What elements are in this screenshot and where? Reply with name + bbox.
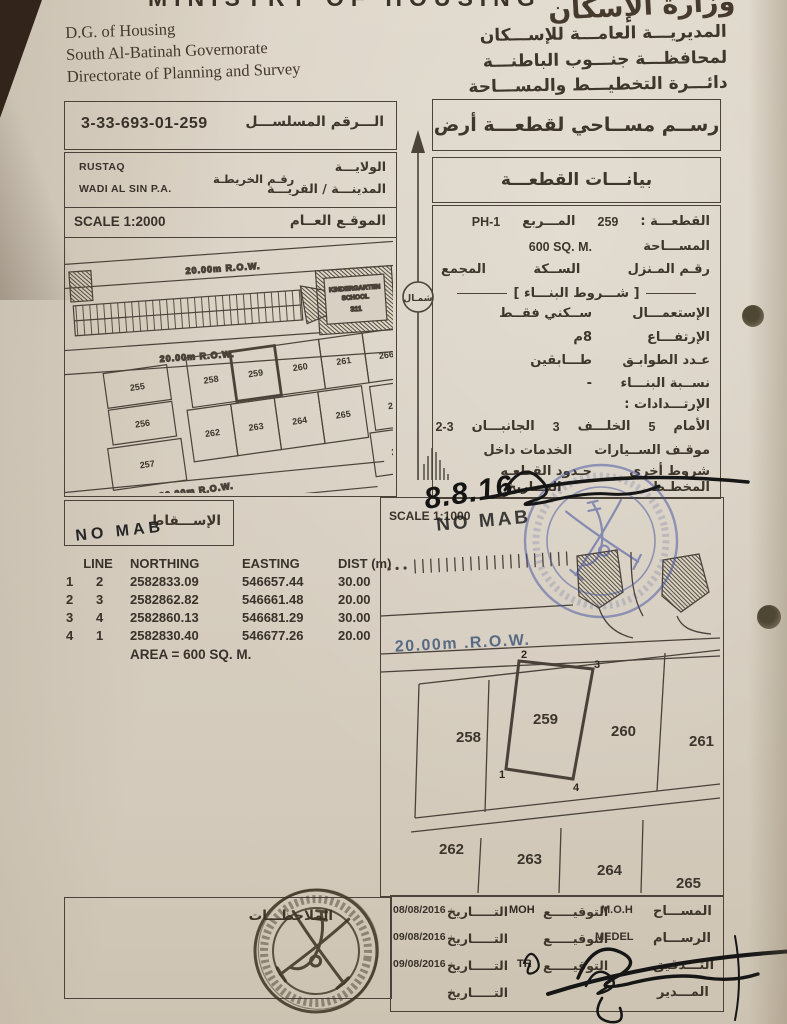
signature-row-checking: التـــدقيق التوقيـــــع TR التـــــاريخ … xyxy=(391,958,723,982)
paper-edge-shadow xyxy=(748,0,787,1024)
notes-box: الملاحظـــات xyxy=(64,897,392,999)
detail-map: SCALE 1:1000 20.00m .R.O.W. xyxy=(380,497,724,897)
admin-area-box: RUSTAQ WADI AL SIN P.A. رقـم الخريطـة ال… xyxy=(64,152,397,208)
plot-data-header-box: بيانـــات القطعـــة xyxy=(432,157,721,203)
coord-cell: 2 xyxy=(66,592,96,607)
detail-road-label: 20.00m .R.O.W. xyxy=(394,632,530,656)
row-plot-number: القطعـــة : 259 المـــربع PH-1 xyxy=(441,214,710,229)
svg-text:265: 265 xyxy=(676,875,701,892)
row-floors: عـدد الطوابـق طـــابقين xyxy=(441,353,710,368)
projection-label: الإســـقاط xyxy=(150,513,221,529)
svg-text:262: 262 xyxy=(204,427,220,439)
svg-text:3: 3 xyxy=(594,659,600,671)
svg-text:255: 255 xyxy=(129,381,145,393)
general-map-title: الموقـع العــام xyxy=(290,213,386,229)
col-easting: EASTING xyxy=(242,556,338,571)
paper-corner-shadow xyxy=(0,0,90,300)
header-ar-line3: دائـــرة التخطيـــط والمســـاحة xyxy=(468,71,728,101)
town-value: WADI AL SIN P.A. xyxy=(79,183,172,195)
svg-text:265: 265 xyxy=(335,409,351,421)
svg-text:268: 268 xyxy=(391,445,393,457)
detail-map-drawing: SCALE 1:1000 20.00m .R.O.W. xyxy=(381,498,720,893)
svg-text:256: 256 xyxy=(134,418,150,430)
signature-row-director: المـــدير التـــــاريخ xyxy=(391,985,723,1009)
svg-text:264: 264 xyxy=(597,862,623,879)
svg-text:266: 266 xyxy=(378,349,393,361)
coord-cell: 1 xyxy=(66,574,96,589)
row-setback-values: الأمام 5 الخلـــف 3 الجانبـــان 2-3 xyxy=(441,419,710,434)
row-height: الإرتفـــاع 8م xyxy=(441,330,710,345)
svg-text:260: 260 xyxy=(611,723,636,740)
row-use: الإستعمـــال ســكني فقــط xyxy=(441,306,710,321)
coordinates-table: LINE NORTHING EASTING DIST (m) 122582833… xyxy=(66,556,396,662)
svg-text:259: 259 xyxy=(247,367,263,379)
projection-box: الإســـقاط xyxy=(64,500,234,546)
svg-text:2: 2 xyxy=(521,649,527,661)
plot-data-box: القطعـــة : 259 المـــربع PH-1 المســـاح… xyxy=(432,205,721,499)
svg-text:264: 264 xyxy=(292,415,308,427)
building-conditions-header: شـــروط البنـــاء xyxy=(457,286,696,301)
coord-cell: 3 xyxy=(66,610,96,625)
plot-data-header: بيانـــات القطعـــة xyxy=(501,170,652,190)
svg-text:262: 262 xyxy=(439,841,464,858)
svg-text:257: 257 xyxy=(139,458,155,470)
svg-text:311: 311 xyxy=(350,306,362,314)
header-arabic: المديريـــة العامـــة للإســـكان لمحافظـ… xyxy=(467,20,727,101)
serial-number-value: 3-33-693-01-259 xyxy=(81,115,208,133)
svg-text:258: 258 xyxy=(456,729,481,746)
signature-row-draftsman: الرســـام MEDEL التوقيـــــع التـــــاري… xyxy=(391,931,723,955)
svg-text:263: 263 xyxy=(517,851,542,868)
svg-text:1: 1 xyxy=(499,769,505,781)
scanned-survey-document: MINISTRY OF HOUSING وزارة الإسكان D.G. o… xyxy=(0,0,787,1024)
svg-text:259: 259 xyxy=(533,711,558,728)
general-location-map: SCALE 1:2000 الموقـع العــام xyxy=(64,207,397,497)
svg-text:261: 261 xyxy=(336,355,352,367)
row-house-number: رقـم المـنزل الســكة المجمع xyxy=(441,262,710,277)
signature-row-surveyor: المســـاح M.O.H التوقيـــــع MOH التــــ… xyxy=(391,904,723,928)
document-title: رســم مســاحي لقطعـــة أرض xyxy=(434,114,720,136)
row-other-conditions: شروط أخرى حـدود القطعـه xyxy=(441,464,710,479)
wilaya-label: الولايـــة xyxy=(335,159,386,174)
svg-text:260: 260 xyxy=(292,361,308,373)
serial-number-box: 3-33-693-01-259 الـــرقم المسلســـل xyxy=(64,101,397,150)
row-area: المســـاحة 600 SQ. M. xyxy=(441,239,710,254)
town-label: المدينـــة / القريـــة xyxy=(267,181,386,196)
general-map-header: SCALE 1:2000 الموقـع العــام xyxy=(65,208,396,238)
serial-number-label: الـــرقم المسلســـل xyxy=(245,114,384,130)
row-setbacks: الإرتـــدادات : xyxy=(441,397,710,412)
col-northing: NORTHING xyxy=(130,556,242,571)
notes-label: الملاحظـــات xyxy=(249,908,333,924)
svg-text:258: 258 xyxy=(203,374,219,386)
cut-off-ministry-title: MINISTRY OF HOUSING xyxy=(148,0,542,12)
signature-table: المســـاح M.O.H التوقيـــــع MOH التــــ… xyxy=(390,895,724,1012)
row-planner-date: المخطـط التـــاريخ xyxy=(441,480,710,495)
header-english: D.G. of Housing South Al-Batinah Governo… xyxy=(65,14,301,87)
svg-text:267: 267 xyxy=(387,399,393,411)
punch-hole-bottom xyxy=(757,605,781,629)
col-line: LINE xyxy=(66,556,130,571)
north-label: شمـال xyxy=(403,294,432,304)
detail-map-scale: SCALE 1:1000 xyxy=(389,509,471,523)
row-parking: موقـف الســيارات الخدمات داخل xyxy=(441,443,710,458)
coord-cell: 4 xyxy=(66,628,96,643)
svg-text:4: 4 xyxy=(573,782,580,794)
document-title-box: رســم مســاحي لقطعـــة أرض xyxy=(432,99,721,151)
svg-text:263: 263 xyxy=(248,421,264,433)
general-map-drawing: 20.00m R.O.W. 20.00m R.O.W. KINDERGARTEN… xyxy=(65,237,393,493)
svg-text:261: 261 xyxy=(689,733,714,750)
row-ratio: نســبة البنـــاء - xyxy=(441,376,710,391)
area-total: AREA = 600 SQ. M. xyxy=(130,647,396,662)
header-ar-line1: المديريـــة العامـــة للإســـكان xyxy=(467,20,727,50)
punch-hole-top xyxy=(742,305,764,327)
svg-text:20.00m R.O.W.: 20.00m R.O.W. xyxy=(185,261,261,276)
